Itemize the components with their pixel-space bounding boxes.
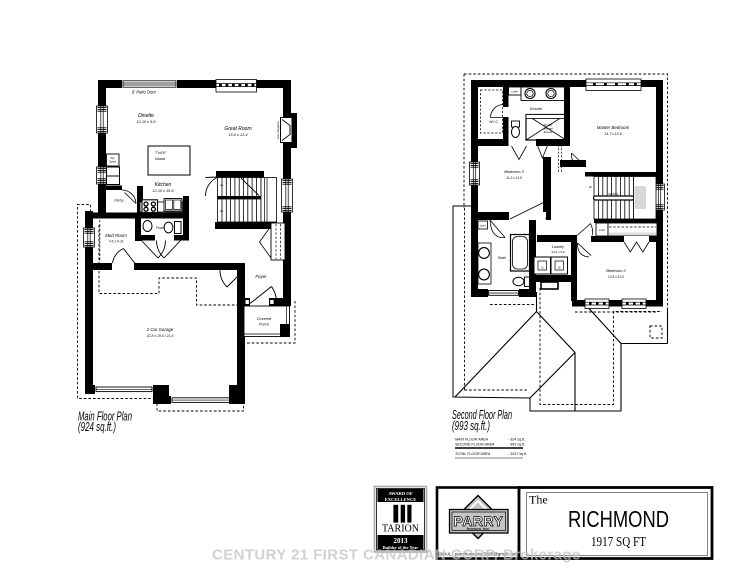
svg-text:Laundry: Laundry bbox=[552, 245, 565, 249]
svg-text:Glassed: Glassed bbox=[543, 127, 553, 131]
svg-text:48"x36": 48"x36" bbox=[544, 123, 554, 127]
svg-text:Foyer: Foyer bbox=[255, 274, 267, 279]
svg-text:Space: Space bbox=[109, 161, 116, 164]
svg-text:Master Bedroom: Master Bedroom bbox=[597, 125, 630, 130]
svg-text:MAIN FLOOR AREA: MAIN FLOOR AREA bbox=[455, 438, 489, 442]
svg-text:AWARD OF: AWARD OF bbox=[388, 491, 413, 496]
svg-text:- 924 sq.ft.: - 924 sq.ft. bbox=[508, 438, 525, 442]
svg-text:Island: Island bbox=[155, 157, 166, 161]
svg-text:Gas Fireplace: Gas Fireplace bbox=[276, 121, 280, 139]
svg-text:- 1917 sq.ft.: - 1917 sq.ft. bbox=[508, 452, 527, 456]
svg-text:12-10 x 9-6: 12-10 x 9-6 bbox=[136, 120, 156, 124]
svg-text:Porch: Porch bbox=[259, 323, 269, 327]
svg-text:homes inc.: homes inc. bbox=[467, 527, 491, 532]
svg-text:22-8 x 19-6 / 21-6: 22-8 x 19-6 / 21-6 bbox=[146, 334, 174, 338]
svg-text:15-0 x 13-4: 15-0 x 13-4 bbox=[228, 133, 247, 137]
svg-text:13-8 x 10-0: 13-8 x 10-0 bbox=[608, 275, 624, 279]
svg-text:2 Car Garage: 2 Car Garage bbox=[146, 327, 174, 332]
svg-text:up: up bbox=[220, 183, 224, 187]
svg-text:7-6 x 6-11: 7-6 x 6-11 bbox=[108, 240, 123, 244]
svg-text:Kitchen: Kitchen bbox=[155, 182, 172, 188]
svg-text:TARION: TARION bbox=[382, 524, 419, 535]
svg-text:RICHMOND: RICHMOND bbox=[568, 506, 669, 532]
svg-text:Bath: Bath bbox=[498, 256, 505, 260]
svg-text:11-2 x 11-6: 11-2 x 11-6 bbox=[506, 176, 522, 180]
svg-text:Powd.: Powd. bbox=[156, 226, 165, 230]
svg-text:Ensuite: Ensuite bbox=[530, 107, 542, 111]
svg-text:(993 sq.ft.): (993 sq.ft.) bbox=[452, 419, 490, 433]
svg-text:5-10 x 5-9: 5-10 x 5-9 bbox=[551, 250, 564, 254]
svg-text:14-7 x 13-6: 14-7 x 13-6 bbox=[604, 132, 621, 136]
svg-text:(924 sq.ft.): (924 sq.ft.) bbox=[78, 420, 116, 434]
svg-text:Great Room: Great Room bbox=[224, 126, 251, 132]
svg-text:7'x4'6": 7'x4'6" bbox=[155, 151, 167, 155]
svg-text:W.I.C.: W.I.C. bbox=[489, 120, 499, 124]
svg-text:Railing: Railing bbox=[238, 224, 248, 228]
svg-text:CENTURY 21 FIRST CANADIAN CORP: CENTURY 21 FIRST CANADIAN CORP. Brokerag… bbox=[212, 547, 581, 564]
svg-text:dn: dn bbox=[589, 185, 593, 189]
svg-text:Covered: Covered bbox=[257, 317, 272, 321]
svg-text:dn: dn bbox=[220, 209, 224, 213]
svg-text:2013: 2013 bbox=[394, 537, 409, 545]
svg-text:EXCELLENCE: EXCELLENCE bbox=[385, 497, 417, 502]
svg-text:Dinette: Dinette bbox=[138, 113, 154, 119]
svg-text:The: The bbox=[529, 493, 548, 507]
svg-text:12-10 x 10-6: 12-10 x 10-6 bbox=[152, 189, 174, 193]
svg-text:Bedroom 3: Bedroom 3 bbox=[504, 169, 524, 174]
svg-text:SECOND FLOOR AREA: SECOND FLOOR AREA bbox=[455, 443, 495, 447]
svg-text:Pantry: Pantry bbox=[114, 199, 124, 203]
svg-text:Linen: Linen bbox=[599, 228, 606, 232]
svg-text:- 993 sq.ft.: - 993 sq.ft. bbox=[508, 443, 525, 447]
svg-text:Linen: Linen bbox=[512, 90, 519, 94]
svg-text:Half Wall: Half Wall bbox=[608, 193, 618, 196]
svg-text:Mud Room: Mud Room bbox=[105, 233, 127, 238]
svg-text:6' Patio Door: 6' Patio Door bbox=[132, 90, 157, 95]
svg-text:Linen: Linen bbox=[480, 225, 487, 228]
svg-text:Shower: Shower bbox=[544, 130, 553, 134]
svg-text:TOTAL FLOOR AREA: TOTAL FLOOR AREA bbox=[455, 452, 491, 456]
svg-text:Bedroom 2: Bedroom 2 bbox=[606, 268, 626, 273]
svg-text:1917 SQ FT: 1917 SQ FT bbox=[591, 534, 647, 549]
